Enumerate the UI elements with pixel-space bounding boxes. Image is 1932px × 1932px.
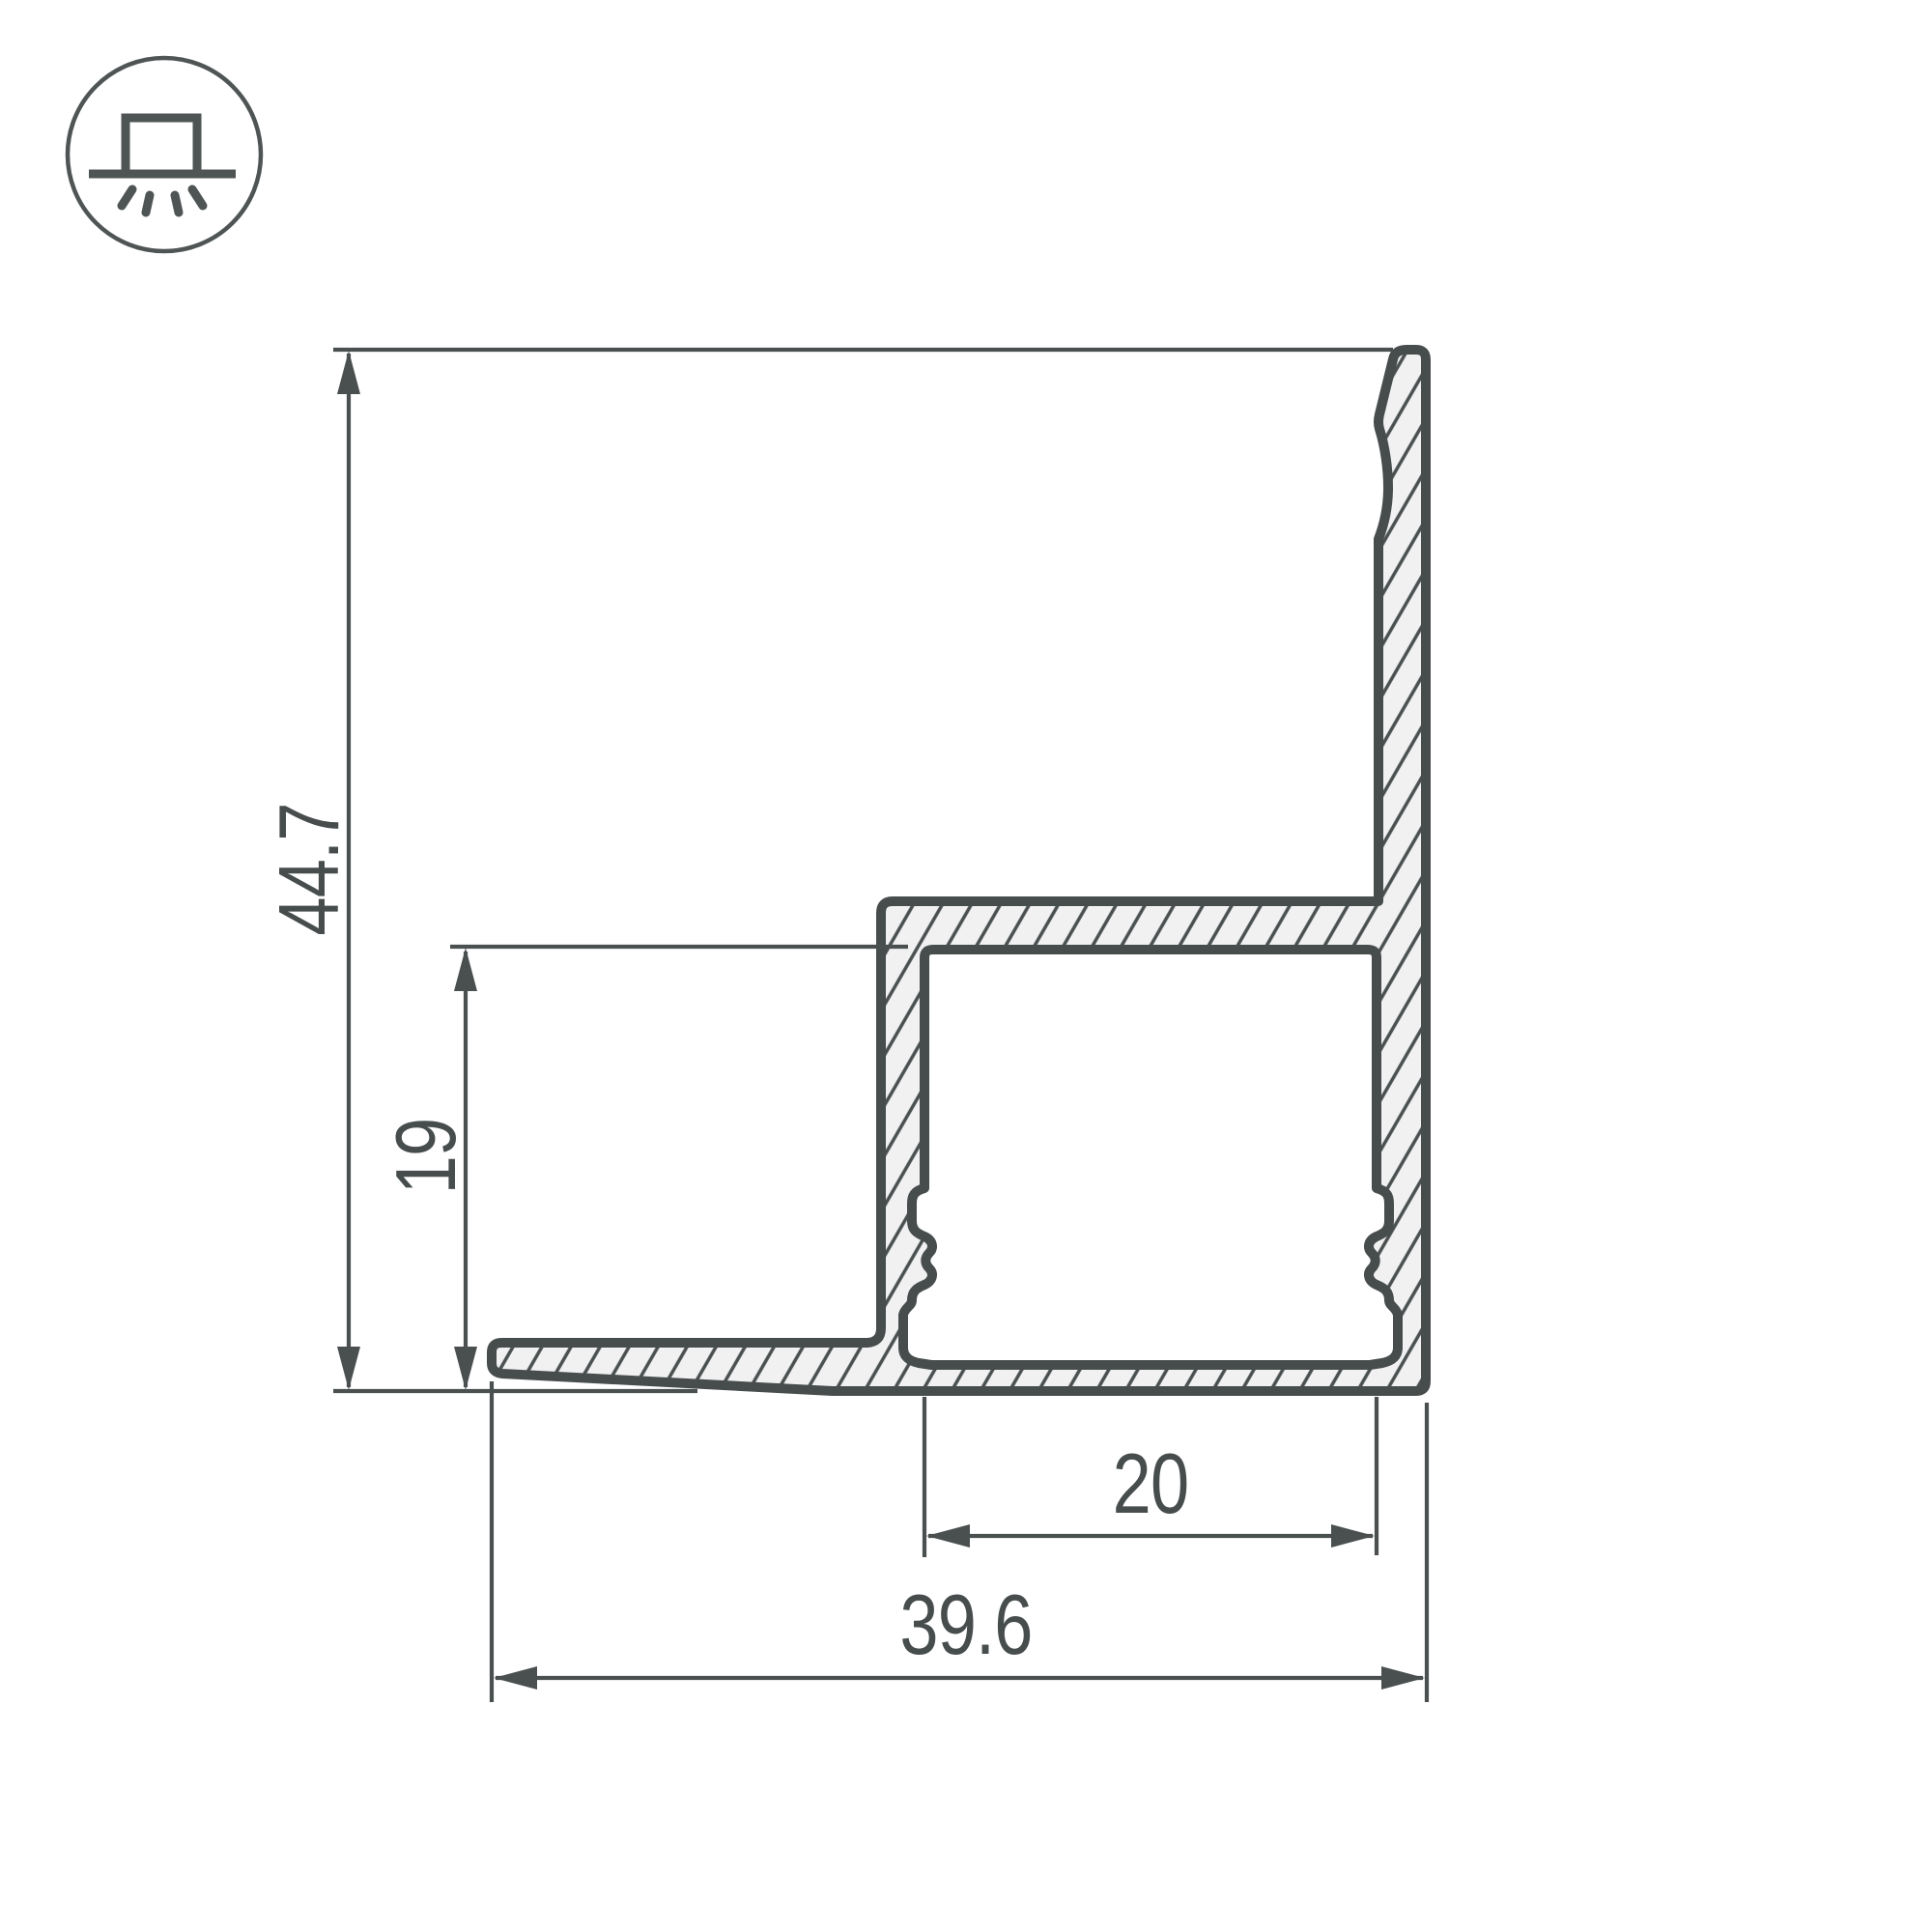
icon-light-rays	[122, 189, 203, 213]
arrowhead-up	[454, 948, 477, 991]
dimension-label-channel-width: 20	[1113, 1436, 1189, 1531]
arrowhead-left	[494, 1666, 537, 1690]
surface-mount-light-icon	[68, 58, 261, 251]
dimension-label-overall-height: 44.7	[262, 803, 356, 935]
arrowhead-left	[926, 1524, 970, 1548]
technical-drawing: 44.7 19 20 39.6	[0, 0, 1932, 1932]
arrowhead-up	[337, 351, 360, 394]
profile-material-fill	[492, 350, 1426, 1391]
dimension-overall-height: 44.7	[262, 350, 1393, 1391]
arrowhead-right	[1331, 1524, 1375, 1548]
drawing-canvas: 44.7 19 20 39.6	[0, 0, 1932, 1932]
profile-cross-section	[492, 350, 1426, 1391]
dimension-channel-width: 20	[924, 1397, 1377, 1557]
arrowhead-down	[454, 1347, 477, 1390]
icon-fixture-box	[126, 118, 197, 174]
profile-outline	[492, 350, 1426, 1391]
arrowhead-right	[1381, 1666, 1425, 1690]
profile-hatching	[492, 350, 1426, 1391]
dimension-label-overall-width: 39.6	[899, 1577, 1032, 1672]
arrowhead-down	[337, 1347, 360, 1390]
icon-circle	[68, 58, 261, 251]
dimension-label-base-height: 19	[379, 1119, 473, 1195]
dimension-base-height: 19	[379, 947, 908, 1390]
